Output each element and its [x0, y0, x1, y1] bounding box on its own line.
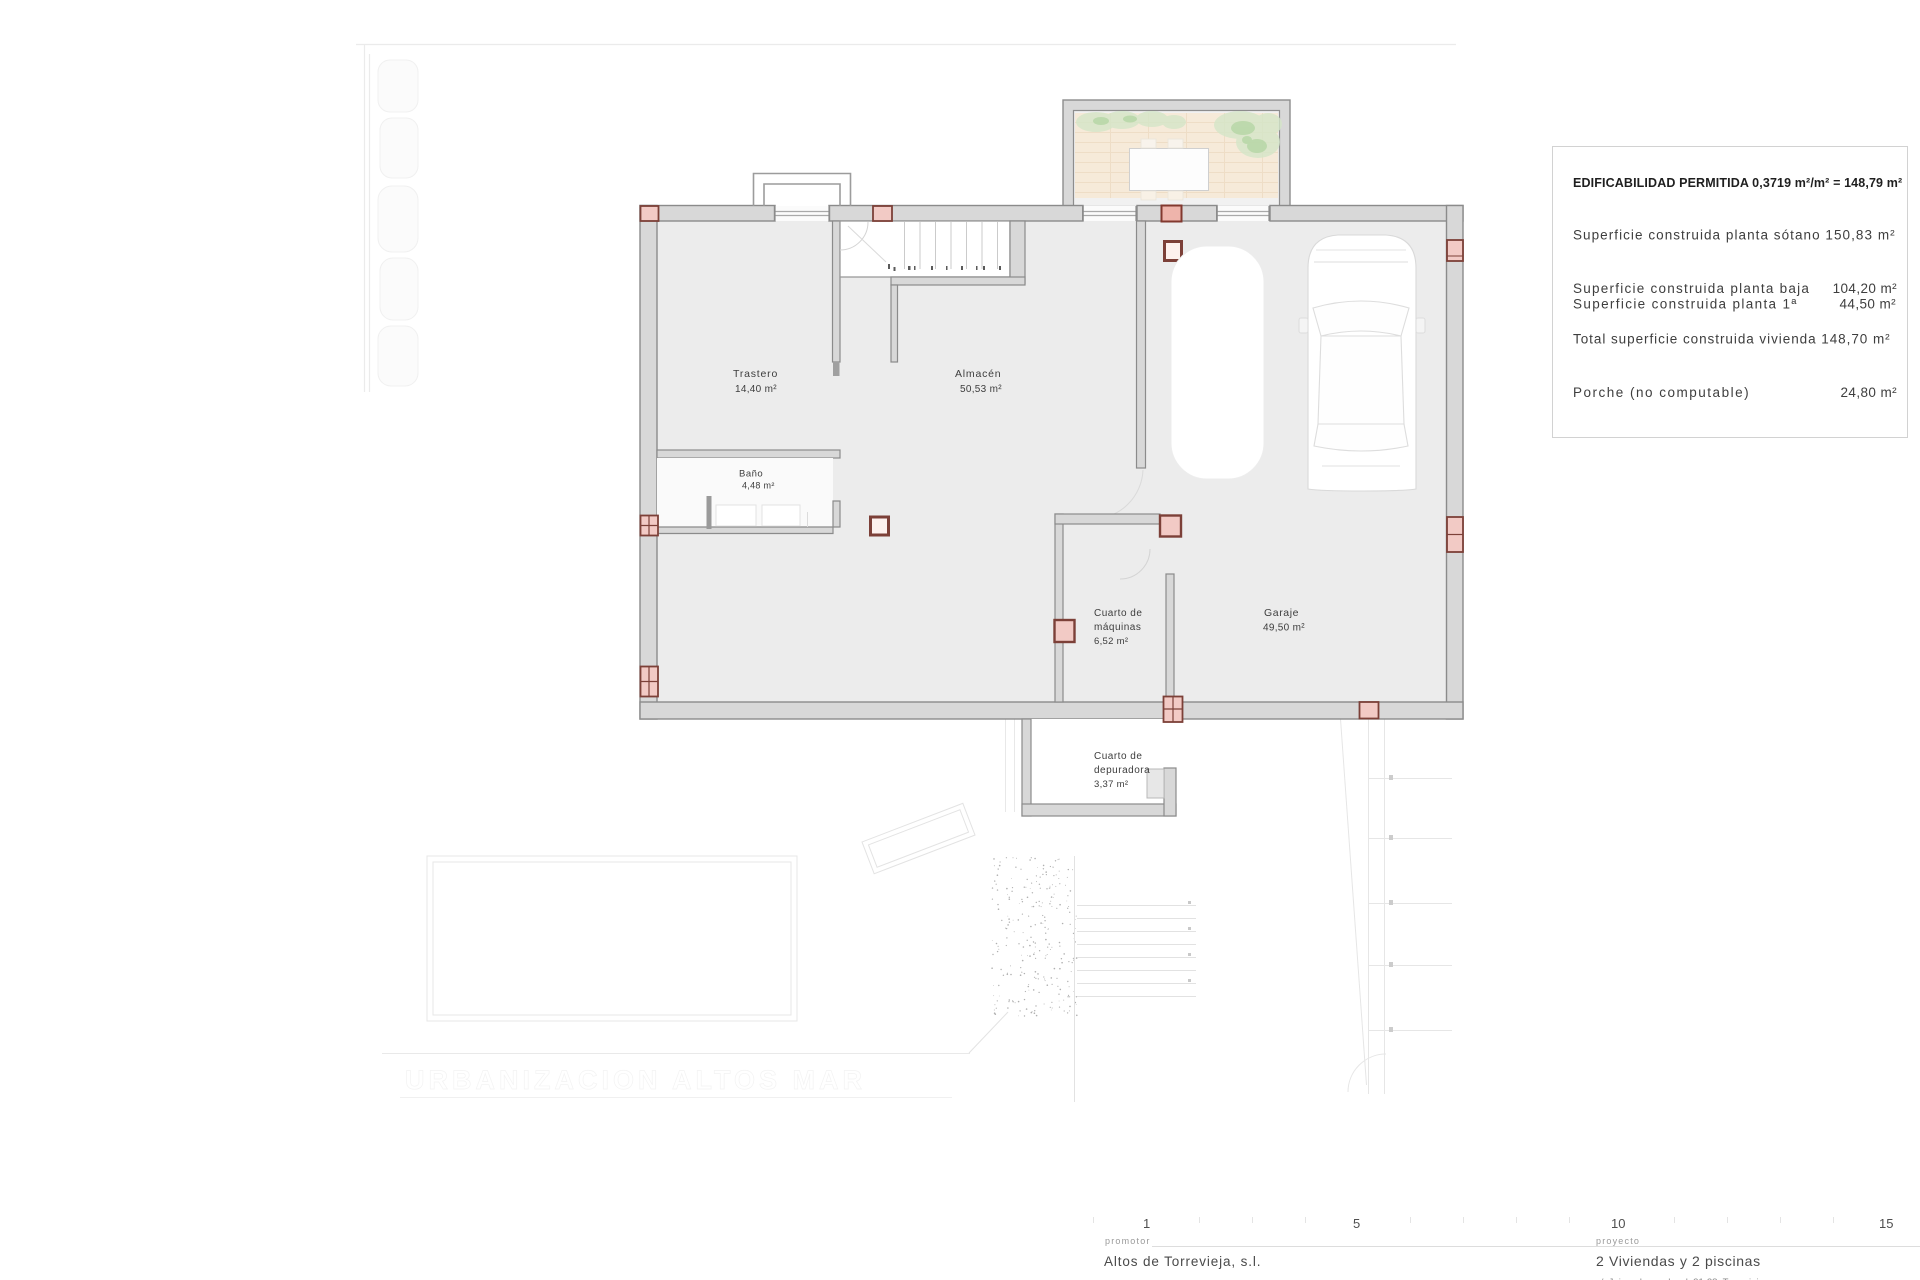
svg-text:5: 5 [1353, 1216, 1360, 1231]
svg-text:4,48 m²: 4,48 m² [742, 481, 775, 491]
svg-text:15: 15 [1879, 1216, 1893, 1231]
svg-text:2 Viviendas y 2 piscinas: 2 Viviendas y 2 piscinas [1596, 1253, 1761, 1269]
svg-text:24,80 m²: 24,80 m² [1841, 385, 1898, 400]
svg-text:Cuarto de: Cuarto de [1094, 751, 1142, 762]
svg-text:50,53 m²: 50,53 m² [960, 384, 1002, 395]
svg-text:104,20 m²: 104,20 m² [1833, 281, 1897, 296]
svg-text:máquinas: máquinas [1094, 622, 1141, 633]
svg-text:1: 1 [1143, 1216, 1150, 1231]
svg-text:Trastero: Trastero [733, 368, 778, 380]
svg-text:EDIFICABILIDAD PERMITIDA 0,371: EDIFICABILIDAD PERMITIDA 0,3719 m²/m² = … [1573, 176, 1902, 190]
svg-text:Superficie construida planta b: Superficie construida planta baja [1573, 281, 1810, 296]
svg-text:Baño: Baño [739, 469, 763, 480]
svg-text:Porche (no computable): Porche (no computable) [1573, 385, 1750, 400]
svg-text:Altos de Torrevieja, s.l.: Altos de Torrevieja, s.l. [1104, 1254, 1261, 1269]
svg-text:Superficie construida planta s: Superficie construida planta sótano 150,… [1573, 228, 1896, 243]
svg-text:6,52 m²: 6,52 m² [1094, 636, 1128, 647]
svg-text:44,50 m²: 44,50 m² [1840, 297, 1897, 312]
svg-text:Superficie construida planta 1: Superficie construida planta 1ª [1573, 297, 1798, 312]
svg-text:49,50 m²: 49,50 m² [1263, 623, 1305, 634]
svg-text:promotor: promotor [1105, 1236, 1151, 1246]
svg-text:10: 10 [1611, 1216, 1625, 1231]
svg-text:Total superficie construida vi: Total superficie construida vivienda 148… [1573, 332, 1891, 347]
svg-text:depuradora: depuradora [1094, 765, 1150, 776]
svg-text:proyecto: proyecto [1596, 1236, 1640, 1246]
svg-text:3,37 m²: 3,37 m² [1094, 779, 1128, 790]
svg-text:Almacén: Almacén [955, 368, 1001, 380]
svg-text:URBANIZACION ALTOS MAR: URBANIZACION ALTOS MAR [405, 1065, 866, 1095]
svg-text:Garaje: Garaje [1264, 607, 1299, 619]
svg-text:14,40 m²: 14,40 m² [735, 384, 777, 395]
svg-text:Cuarto de: Cuarto de [1094, 608, 1142, 619]
